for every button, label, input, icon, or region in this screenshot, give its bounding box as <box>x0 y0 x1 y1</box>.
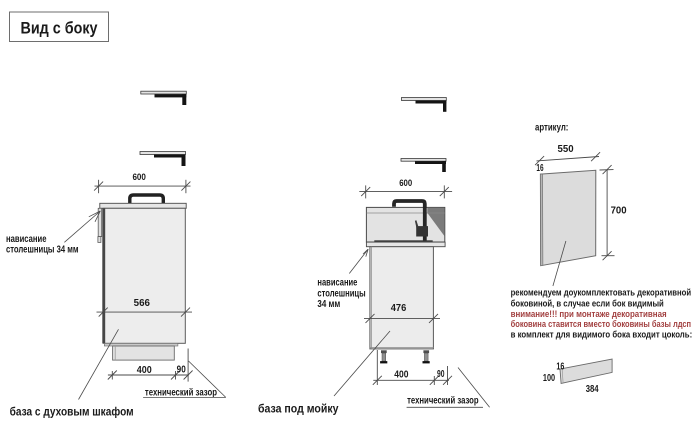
svg-text:600: 600 <box>399 178 412 189</box>
svg-text:артикул:: артикул: <box>535 122 568 133</box>
svg-text:нависание: нависание <box>6 234 47 245</box>
svg-text:600: 600 <box>132 172 146 183</box>
svg-text:34 мм: 34 мм <box>317 299 340 310</box>
svg-text:700: 700 <box>611 206 627 217</box>
svg-text:476: 476 <box>391 303 407 314</box>
svg-text:100: 100 <box>543 373 556 384</box>
svg-text:база под мойку: база под мойку <box>258 402 339 416</box>
svg-text:рекомендуем доукомплектовать д: рекомендуем доукомплектовать декоративно… <box>511 288 692 299</box>
svg-text:400: 400 <box>394 369 409 380</box>
svg-text:384: 384 <box>586 384 599 395</box>
svg-text:в комплект для видимого бока в: в комплект для видимого бока входит цоко… <box>511 330 693 341</box>
svg-text:550: 550 <box>558 144 575 155</box>
svg-text:столешницы 34 мм: столешницы 34 мм <box>6 245 79 256</box>
svg-text:566: 566 <box>134 298 151 309</box>
svg-text:нависание: нависание <box>317 278 357 289</box>
svg-text:технический зазор: технический зазор <box>145 387 217 398</box>
svg-text:400: 400 <box>137 365 152 376</box>
svg-text:столешницы: столешницы <box>317 288 365 299</box>
svg-text:боковиной, в случае если бок в: боковиной, в случае если бок видимый <box>511 298 664 309</box>
svg-text:90: 90 <box>177 365 186 376</box>
svg-text:90: 90 <box>437 369 445 380</box>
svg-text:16: 16 <box>536 163 543 174</box>
svg-text:16: 16 <box>556 361 564 372</box>
svg-text:технический зазор: технический зазор <box>407 395 479 406</box>
svg-text:Вид с боку: Вид с боку <box>21 19 98 38</box>
svg-text:база с духовым шкафом: база с духовым шкафом <box>10 405 134 419</box>
